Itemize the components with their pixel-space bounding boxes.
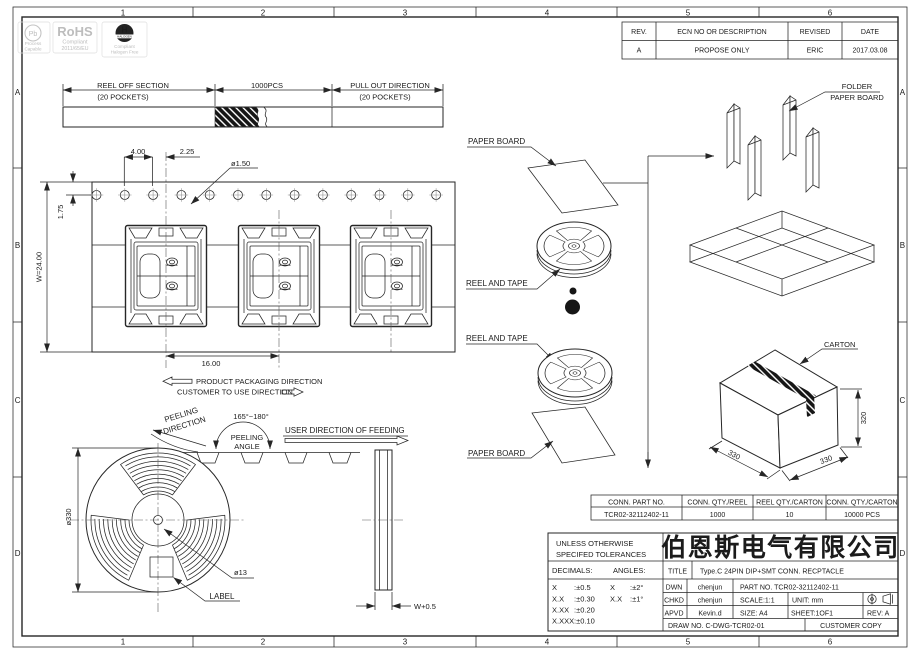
tol-ang-2-name: X.X (610, 595, 622, 604)
folder-post (748, 136, 761, 200)
reel-and-tape-label-2: REEL AND TAPE (466, 334, 528, 343)
paper-board-sheet (532, 407, 615, 463)
rev-value-block: REV: A (867, 611, 890, 618)
tol-dec-2-name: X.X (552, 595, 564, 604)
qty-header-conncarton: CONN. QTY./CARTON (826, 500, 897, 507)
date-value: 2017.03.08 (852, 48, 887, 55)
ecn-header: ECN NO OR DESCRIPTION (677, 29, 766, 36)
pb-caption1: Process (25, 41, 42, 46)
revision-table: REV. ECN NO OR DESCRIPTION REVISED DATE … (622, 22, 898, 59)
rev-value: A (637, 48, 642, 55)
dim-tape-width: W=24.00 (35, 252, 44, 282)
title-label: TITLE (668, 569, 687, 576)
label-callout: LABEL (210, 592, 235, 601)
qty-value-reel: 1000 (710, 512, 726, 519)
pull-out-sub: (20 POCKETS) (359, 93, 411, 102)
tol-ang-1-name: X (610, 583, 615, 592)
compliance-logos: Pb Process Capable RoHS Compliant 2011/6… (18, 22, 147, 57)
dim-side-width: W+0.5 (414, 602, 436, 611)
packing-sequence: PAPER BOARD REEL AND TAPE REEL AND TAPE … (466, 137, 714, 468)
grid-col-label: 4 (545, 8, 550, 17)
reel-off-diagram: REEL OFF SECTION (20 POCKETS) 1000PCS PU… (63, 81, 443, 127)
dim-hub-diameter: ø13 (234, 568, 247, 577)
dwn-label: DWN (666, 585, 683, 592)
dim-hole-pitch: 4.00 (131, 147, 146, 156)
peeling-angle-line1: PEELING (231, 433, 264, 442)
qty-header-reel: CONN. QTY./REEL (687, 500, 747, 507)
grid-col-label: 6 (828, 638, 833, 647)
reel-front-view: ø330 ø13 LABEL (64, 443, 254, 612)
title-block: UNLESS OTHERWISE SPECIFED TOLERANCES DEC… (548, 533, 900, 631)
dim-edge: 1.75 (56, 205, 65, 220)
rohs-caption1: Compliant (62, 40, 88, 46)
rohs-logo: RoHS Compliant 2011/65/EU (57, 24, 93, 52)
qty-header-part: CONN. PART NO. (608, 500, 665, 507)
reel-and-tape-label-1: REEL AND TAPE (466, 279, 528, 288)
qty-value-reelcarton: 10 (786, 512, 794, 519)
rohs-caption2: 2011/65/EU (61, 46, 88, 52)
grid-col-label: 5 (686, 638, 691, 647)
halogen-free-logo: H HALOGEN Compliant Halogen Free (111, 24, 139, 55)
customer-copy: CUSTOMER COPY (820, 623, 882, 630)
left-hollow-arrow-icon (163, 377, 192, 385)
reel-off-sub: (20 POCKETS) (97, 93, 149, 102)
carton-label: CARTON (824, 340, 855, 349)
grid-col-label: 3 (403, 638, 408, 647)
company-name: 伯恩斯电气有限公司 (661, 533, 900, 562)
drawing-sheet: 112233445566AABBCCDD Pb Process Capable … (0, 0, 920, 654)
draw-no: DRAW NO. C-DWG-TCR02-01 (668, 623, 765, 630)
customer-direction-note: CUSTOMER TO USE DIRECTION (177, 388, 293, 397)
tolerance-header-line1: UNLESS OTHERWISE (556, 539, 633, 548)
reel-and-tape-1 (537, 222, 611, 278)
tol-dec-1-name: X (552, 583, 557, 592)
pb-free-logo: Pb Process Capable (24, 25, 42, 52)
apvd-value: Kevin.d (698, 611, 721, 618)
pull-out-title: PULL OUT DIRECTION (350, 81, 430, 90)
dim-reel-diameter: ø330 (64, 508, 73, 525)
folder-post (727, 104, 740, 168)
qty-value-part: TCR02-32112402-11 (604, 512, 669, 519)
ellipsis-dot-small (570, 288, 577, 295)
halogen-caption2: Halogen Free (111, 50, 139, 55)
halogen-band: HALOGEN (117, 35, 132, 39)
peeling-diagram: PEELING DIRECTION 165°~180° PEELING ANGL… (151, 404, 408, 463)
tol-dec-4-value: :±0.10 (574, 617, 595, 626)
dim-hole-dia: ø1.50 (231, 159, 250, 168)
paper-board-sheet (528, 160, 618, 213)
grid-row-label: A (15, 88, 21, 97)
halogen-symbol: H (121, 25, 127, 35)
peeling-angle-line2: ANGLE (234, 442, 259, 451)
unit-value: UNIT: mm (792, 598, 823, 605)
ellipsis-dot-large (565, 300, 580, 315)
dim-offset: 2.25 (180, 147, 195, 156)
tol-dec-3-name: X.XX (552, 606, 569, 615)
drawing-canvas: 112233445566AABBCCDD Pb Process Capable … (0, 0, 920, 654)
sheet-value: SHEET:1OF1 (791, 611, 833, 618)
dim-carton-right: 330 (819, 453, 834, 466)
tol-ang-2-value: :±1° (630, 595, 643, 604)
grid-col-label: 5 (686, 8, 691, 17)
drawing-title: Type.C 24PIN DIP+SMT CONN. RECPTACLE (700, 569, 844, 576)
revised-header: REVISED (800, 29, 831, 36)
chkd-value: chenjun (698, 598, 723, 605)
size-value: SIZE: A4 (740, 611, 768, 618)
paper-board-label-2: PAPER BOARD (468, 449, 525, 458)
folder-post (783, 96, 796, 160)
feeding-direction-note: USER DIRECTION OF FEEDING (285, 426, 405, 435)
reel-off-title: REEL OFF SECTION (97, 81, 169, 90)
tol-dec-3-value: :±0.20 (574, 606, 595, 615)
date-header: DATE (861, 29, 879, 36)
packaging-direction-note: PRODUCT PACKAGING DIRECTION (196, 377, 322, 386)
pb-caption2: Capable (24, 47, 42, 52)
chkd-label: CHKD (664, 598, 684, 605)
tol-ang-1-value: :±2° (630, 583, 643, 592)
qty-header-reelcarton: REEL QTY./CARTON (756, 500, 823, 507)
grid-col-label: 2 (261, 8, 266, 17)
direction-notes: PRODUCT PACKAGING DIRECTION CUSTOMER TO … (163, 377, 322, 397)
projection-symbol-icon (868, 594, 893, 605)
paper-board-label-1: PAPER BOARD (468, 137, 525, 146)
grid-row-label: C (15, 396, 21, 405)
angles-label: ANGLES: (613, 566, 646, 575)
apvd-label: APVD (664, 611, 683, 618)
grid-col-label: 6 (828, 8, 833, 17)
dim-pocket-pitch: 16.00 (202, 359, 221, 368)
halogen-caption1: Compliant (114, 44, 135, 49)
folder-label-line1: FOLDER (842, 82, 873, 91)
decimals-label: DECIMALS: (552, 566, 592, 575)
peeling-angle-range: 165°~180° (233, 412, 268, 421)
tape-hatch-segment (215, 107, 259, 126)
grid-row-label: B (15, 241, 20, 250)
grid-col-label: 3 (403, 8, 408, 17)
feeding-hollow-arrow-icon (285, 436, 408, 445)
dim-carton-height: 320 (859, 412, 868, 425)
scale-value: SCALE:1:1 (740, 598, 775, 605)
folder-label-line2: PAPER BOARD (830, 93, 884, 102)
grid-row-label: D (900, 549, 906, 558)
tol-dec-2-value: :±0.30 (574, 595, 595, 604)
dwn-value: chenjun (698, 585, 723, 592)
grid-col-label: 4 (545, 638, 550, 647)
rohs-title: RoHS (57, 24, 93, 39)
closed-carton: CARTON 320 330 330 (709, 340, 868, 481)
reel-side-view: W+0.5 (356, 450, 436, 611)
tolerance-header-line2: SPECIFED TOLERANCES (556, 550, 646, 559)
rev-header: REV. (631, 29, 647, 36)
dim-carton-left: 330 (727, 448, 742, 462)
revised-value: ERIC (807, 48, 824, 55)
grid-row-label: C (900, 396, 906, 405)
reel-and-tape-2 (538, 349, 612, 405)
grid-row-label: B (900, 241, 905, 250)
grid-row-label: D (15, 549, 21, 558)
grid-col-label: 1 (121, 638, 126, 647)
part-no: PART NO. TCR02-32112402-11 (740, 585, 839, 592)
tol-dec-1-value: :±0.5 (574, 583, 591, 592)
carrier-tape-view: 4.00 2.25 ø1.50 1.75 W=24.00 16.00 (35, 147, 456, 368)
reel-off-qty: 1000PCS (251, 81, 283, 90)
pb-symbol: Pb (29, 31, 38, 38)
folder-post (806, 128, 819, 192)
quantity-table: CONN. PART NO. CONN. QTY./REEL REEL QTY.… (591, 495, 898, 520)
tol-dec-4-name: X.XXX (552, 617, 574, 626)
grid-row-label: A (900, 88, 906, 97)
folder-and-open-carton: FOLDER PAPER BOARD (690, 82, 884, 296)
ecn-value: PROPOSE ONLY (694, 48, 749, 55)
grid-col-label: 1 (121, 8, 126, 17)
open-carton (690, 211, 874, 296)
grid-col-label: 2 (261, 638, 266, 647)
qty-value-conncarton: 10000 PCS (844, 512, 880, 519)
